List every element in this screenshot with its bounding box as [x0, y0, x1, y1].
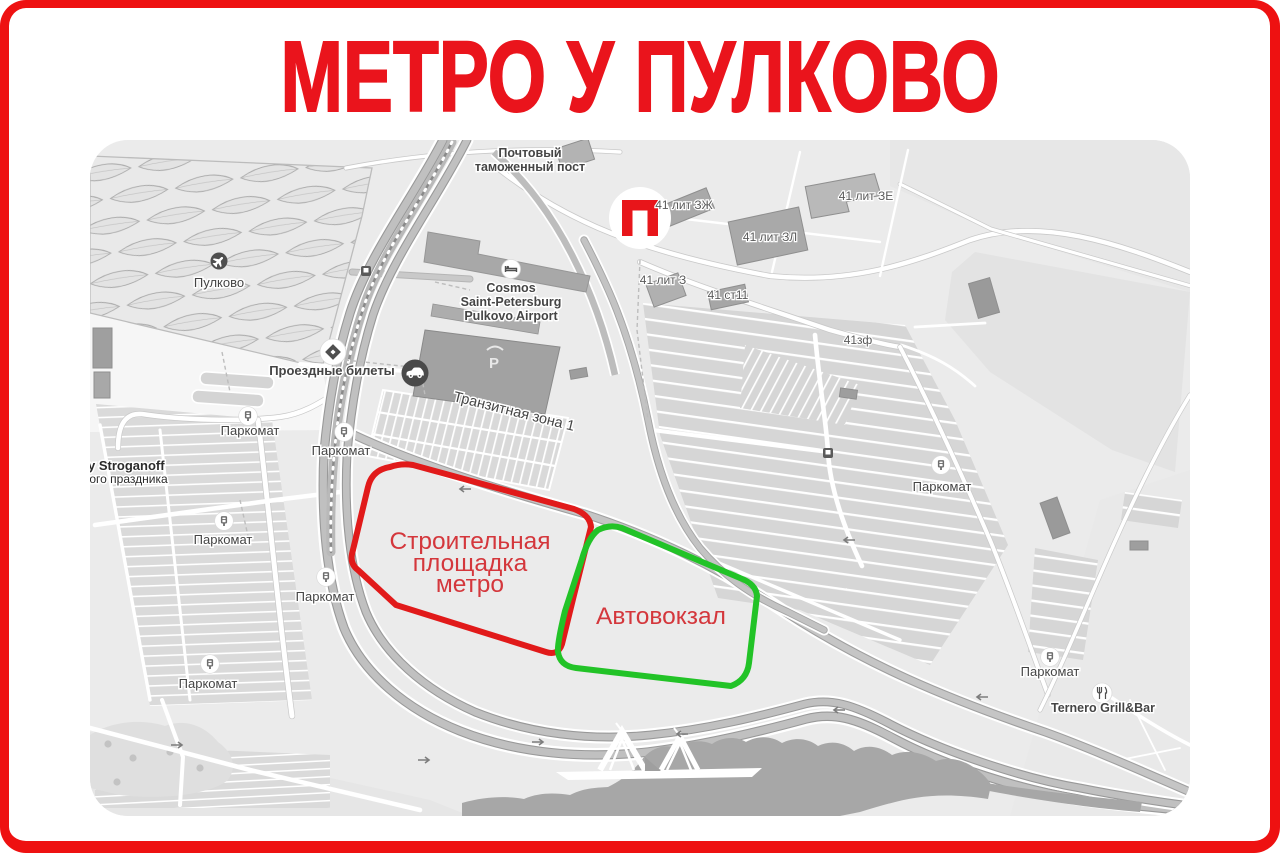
svg-text:41зф: 41зф	[844, 333, 873, 347]
svg-text:метро: метро	[436, 571, 504, 598]
svg-text:Паркомат: Паркомат	[221, 423, 280, 438]
svg-text:кого праздника: кого праздника	[84, 472, 168, 486]
svg-text:Проездные билеты: Проездные билеты	[269, 363, 395, 378]
svg-text:41 лит ЗЛ: 41 лит ЗЛ	[743, 230, 797, 244]
svg-text:y Stroganoff: y Stroganoff	[88, 458, 165, 473]
svg-text:Ternero Grill&Bar: Ternero Grill&Bar	[1051, 701, 1155, 715]
svg-text:Почтовый: Почтовый	[498, 146, 561, 160]
svg-text:Pulkovo Airport: Pulkovo Airport	[464, 309, 558, 323]
svg-text:Паркомат: Паркомат	[913, 479, 972, 494]
svg-text:P: P	[489, 355, 499, 372]
svg-text:41 лит ЗЕ: 41 лит ЗЕ	[839, 189, 893, 203]
svg-text:таможенный пост: таможенный пост	[475, 160, 585, 174]
svg-text:Cosmos: Cosmos	[486, 281, 535, 295]
svg-text:Паркомат: Паркомат	[179, 676, 238, 691]
svg-text:41 ст11: 41 ст11	[708, 288, 749, 302]
svg-text:Saint-Petersburg: Saint-Petersburg	[461, 295, 562, 309]
svg-text:Паркомат: Паркомат	[296, 589, 355, 604]
svg-text:41 лит ЗЖ: 41 лит ЗЖ	[655, 198, 713, 212]
svg-text:41 лит З: 41 лит З	[640, 273, 686, 287]
svg-text:Автовокзал: Автовокзал	[596, 603, 726, 630]
svg-text:Паркомат: Паркомат	[312, 443, 371, 458]
svg-text:Паркомат: Паркомат	[1021, 664, 1080, 679]
svg-text:Пулково: Пулково	[194, 275, 244, 290]
svg-text:Паркомат: Паркомат	[194, 532, 253, 547]
